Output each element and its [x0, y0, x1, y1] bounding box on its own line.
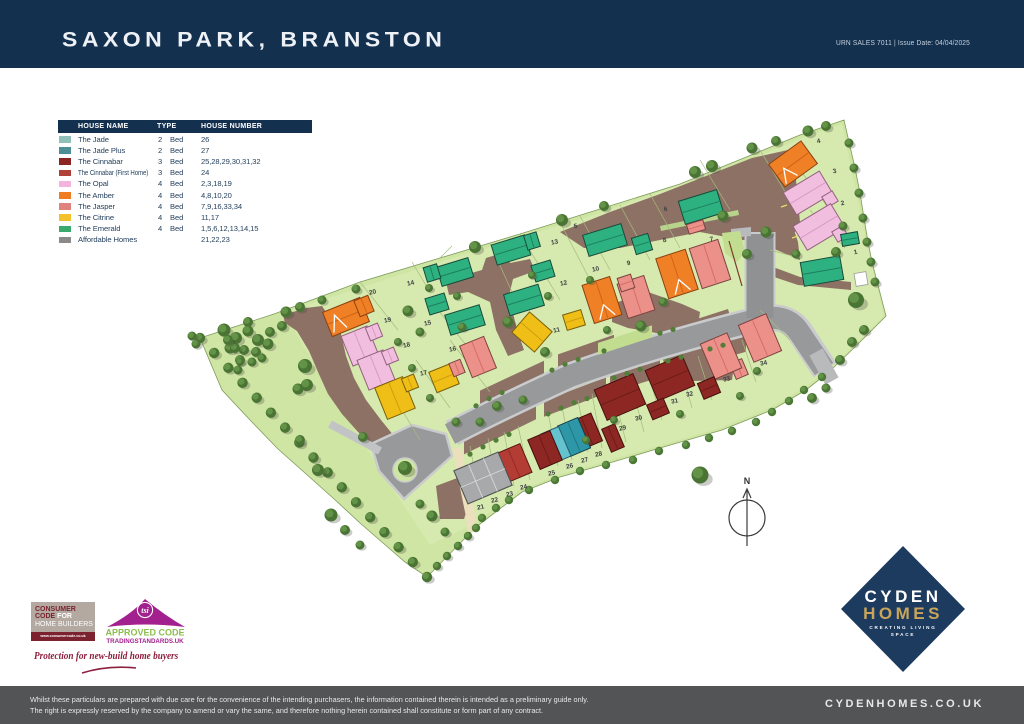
- svg-text:TRADINGSTANDARDS.UK: TRADINGSTANDARDS.UK: [106, 638, 184, 645]
- svg-text:N: N: [744, 476, 751, 486]
- svg-text:CREATING LIVING: CREATING LIVING: [869, 625, 936, 630]
- svg-text:APPROVED CODE: APPROVED CODE: [105, 628, 184, 638]
- svg-text:tsi: tsi: [141, 606, 149, 615]
- svg-text:SPACE: SPACE: [891, 632, 916, 637]
- svg-text:HOMES: HOMES: [863, 604, 943, 623]
